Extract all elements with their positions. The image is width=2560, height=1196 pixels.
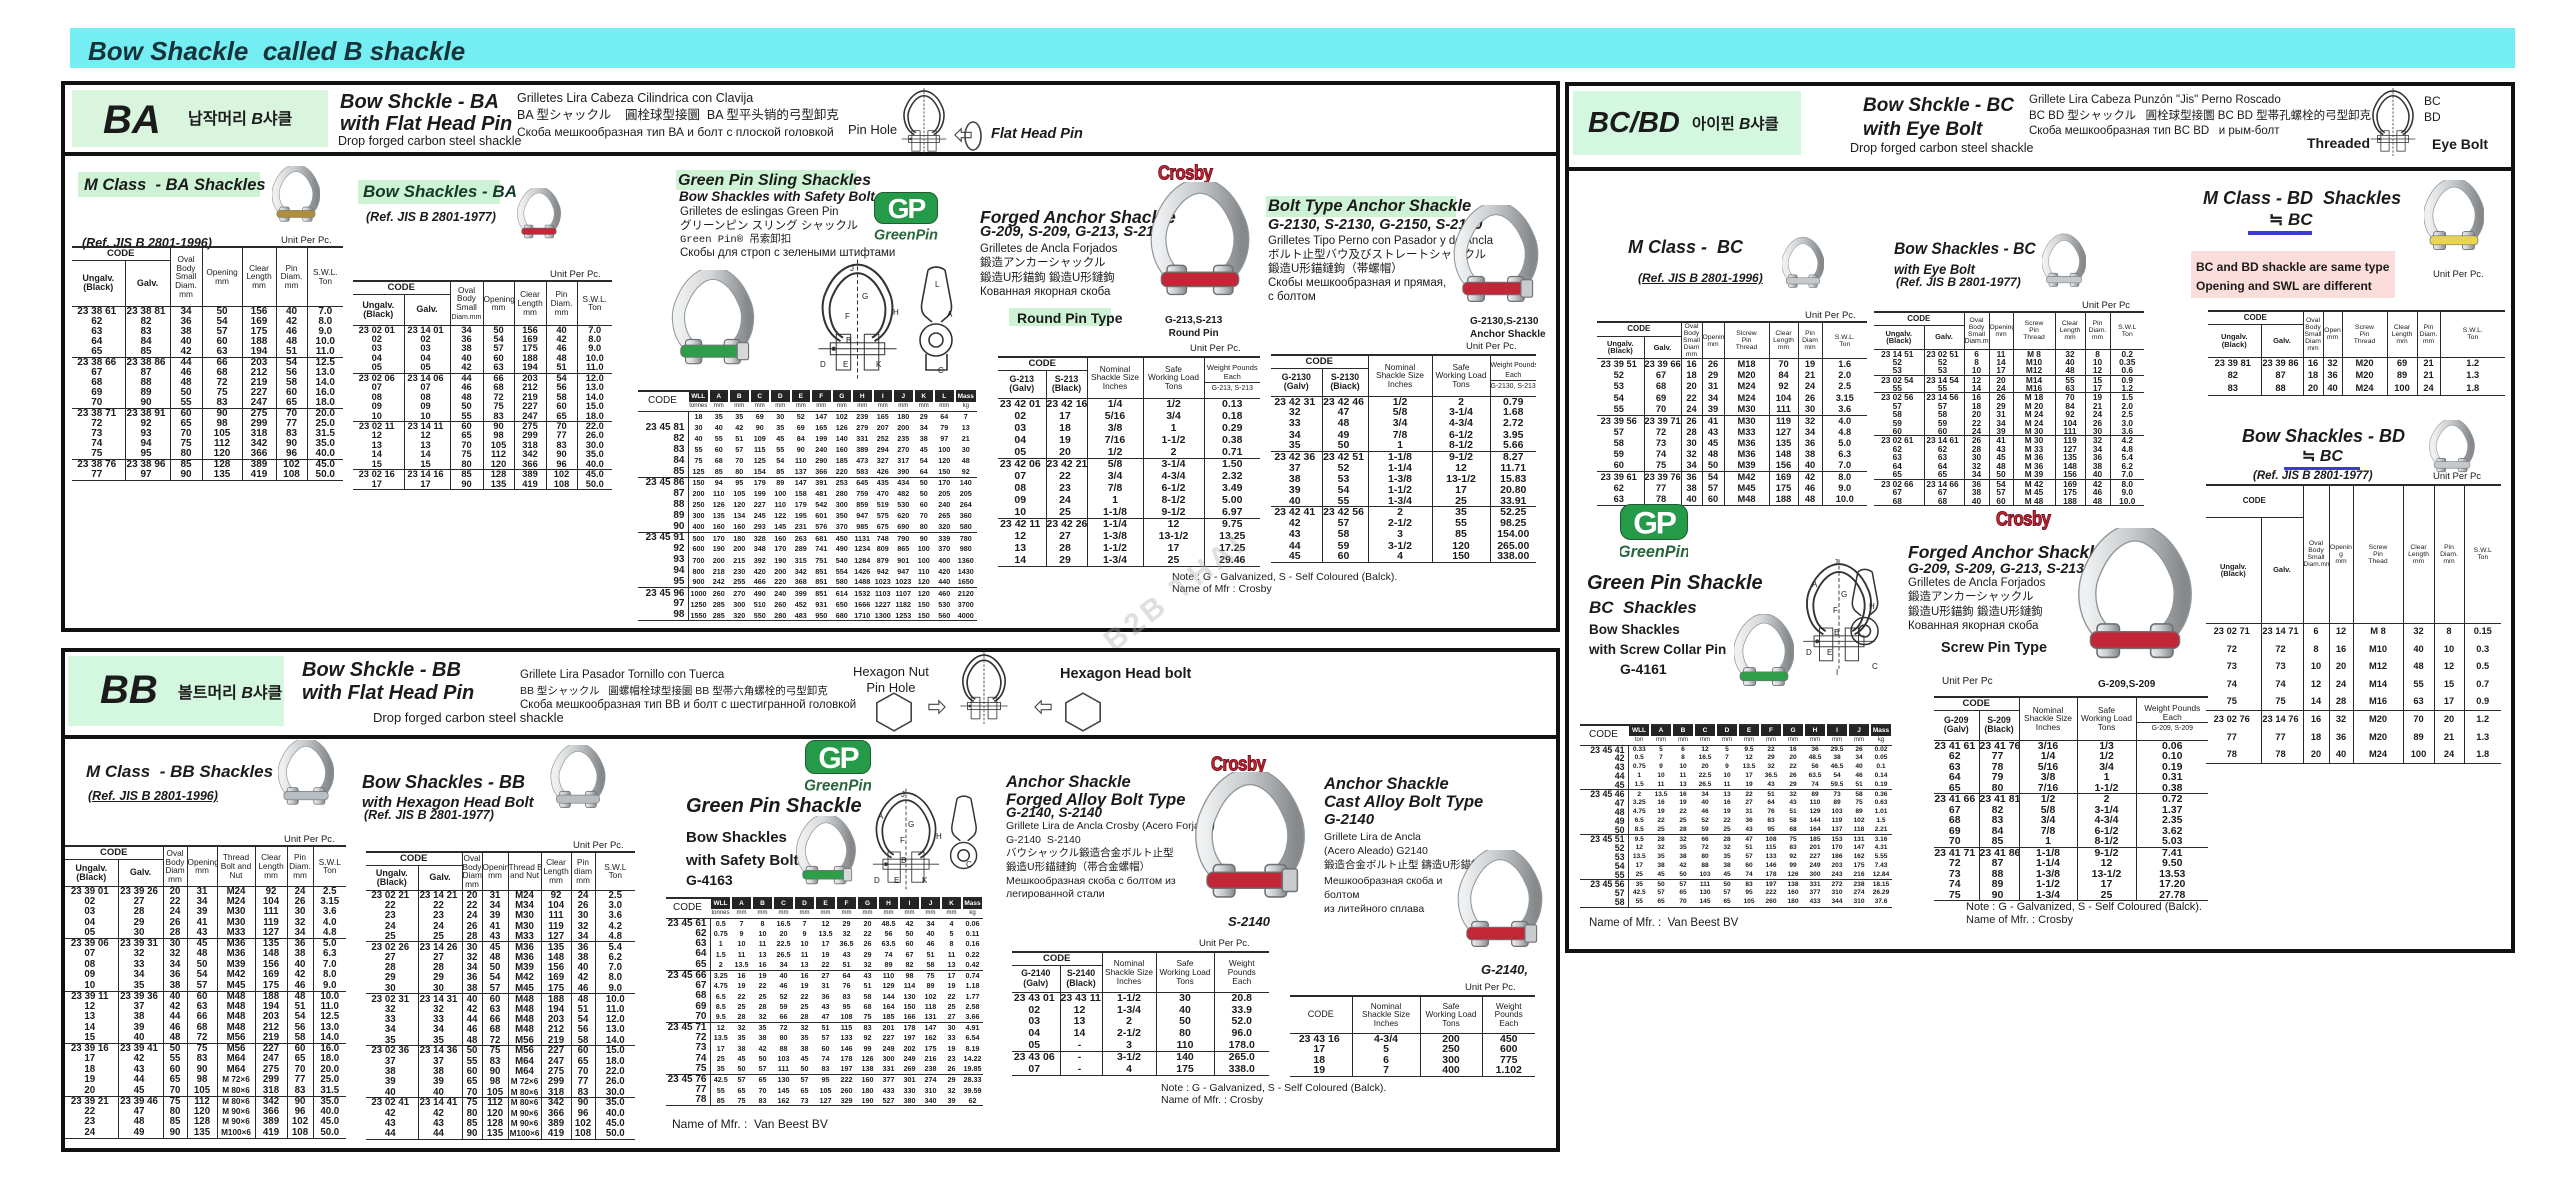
svg-text:GP: GP: [888, 193, 926, 224]
svg-text:GreenPin: GreenPin: [1620, 543, 1688, 559]
svg-text:GP: GP: [818, 742, 858, 775]
svg-text:GP: GP: [1633, 505, 1676, 541]
svg-text:GreenPin: GreenPin: [805, 777, 871, 792]
svg-text:GreenPin: GreenPin: [874, 227, 938, 241]
